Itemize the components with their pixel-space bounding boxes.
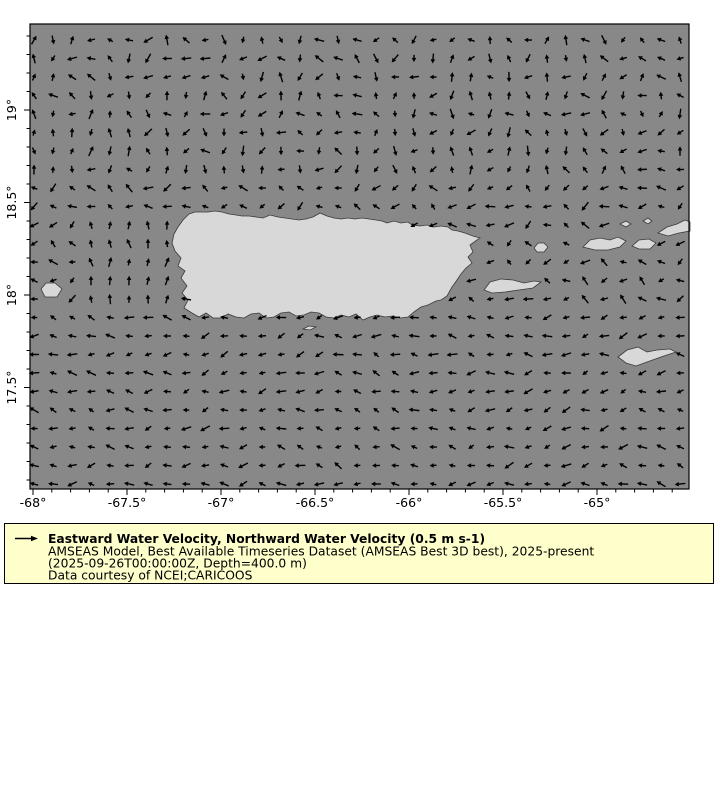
y-tick-label: 18.5° [4, 185, 19, 219]
y-axis: 19°18.5°18°17.5° [4, 36, 30, 480]
x-tick-label: -67° [208, 495, 235, 510]
x-tick-label: -65° [584, 495, 611, 510]
x-tick-label: -68° [20, 495, 47, 510]
x-axis: -68°-67.5°-67°-66.5°-66°-65.5°-65° [20, 489, 673, 510]
x-tick-label: -65.5° [484, 495, 523, 510]
y-tick-label: 17.5° [4, 370, 19, 404]
y-tick-label: 18° [4, 284, 19, 306]
x-tick-label: -67.5° [108, 495, 147, 510]
figure-canvas: -68°-67.5°-67°-66.5°-66°-65.5°-65° 19°18… [0, 0, 720, 800]
y-tick-label: 19° [4, 99, 19, 121]
legend-subtitle-courtesy: Data courtesy of NCEI;CARICOOS [48, 569, 253, 583]
x-tick-label: -66.5° [296, 495, 335, 510]
x-tick-label: -66° [396, 495, 423, 510]
legend-box: Eastward Water Velocity, Northward Water… [5, 524, 714, 584]
velocity-map-figure: -68°-67.5°-67°-66.5°-66°-65.5°-65° 19°18… [0, 0, 720, 800]
